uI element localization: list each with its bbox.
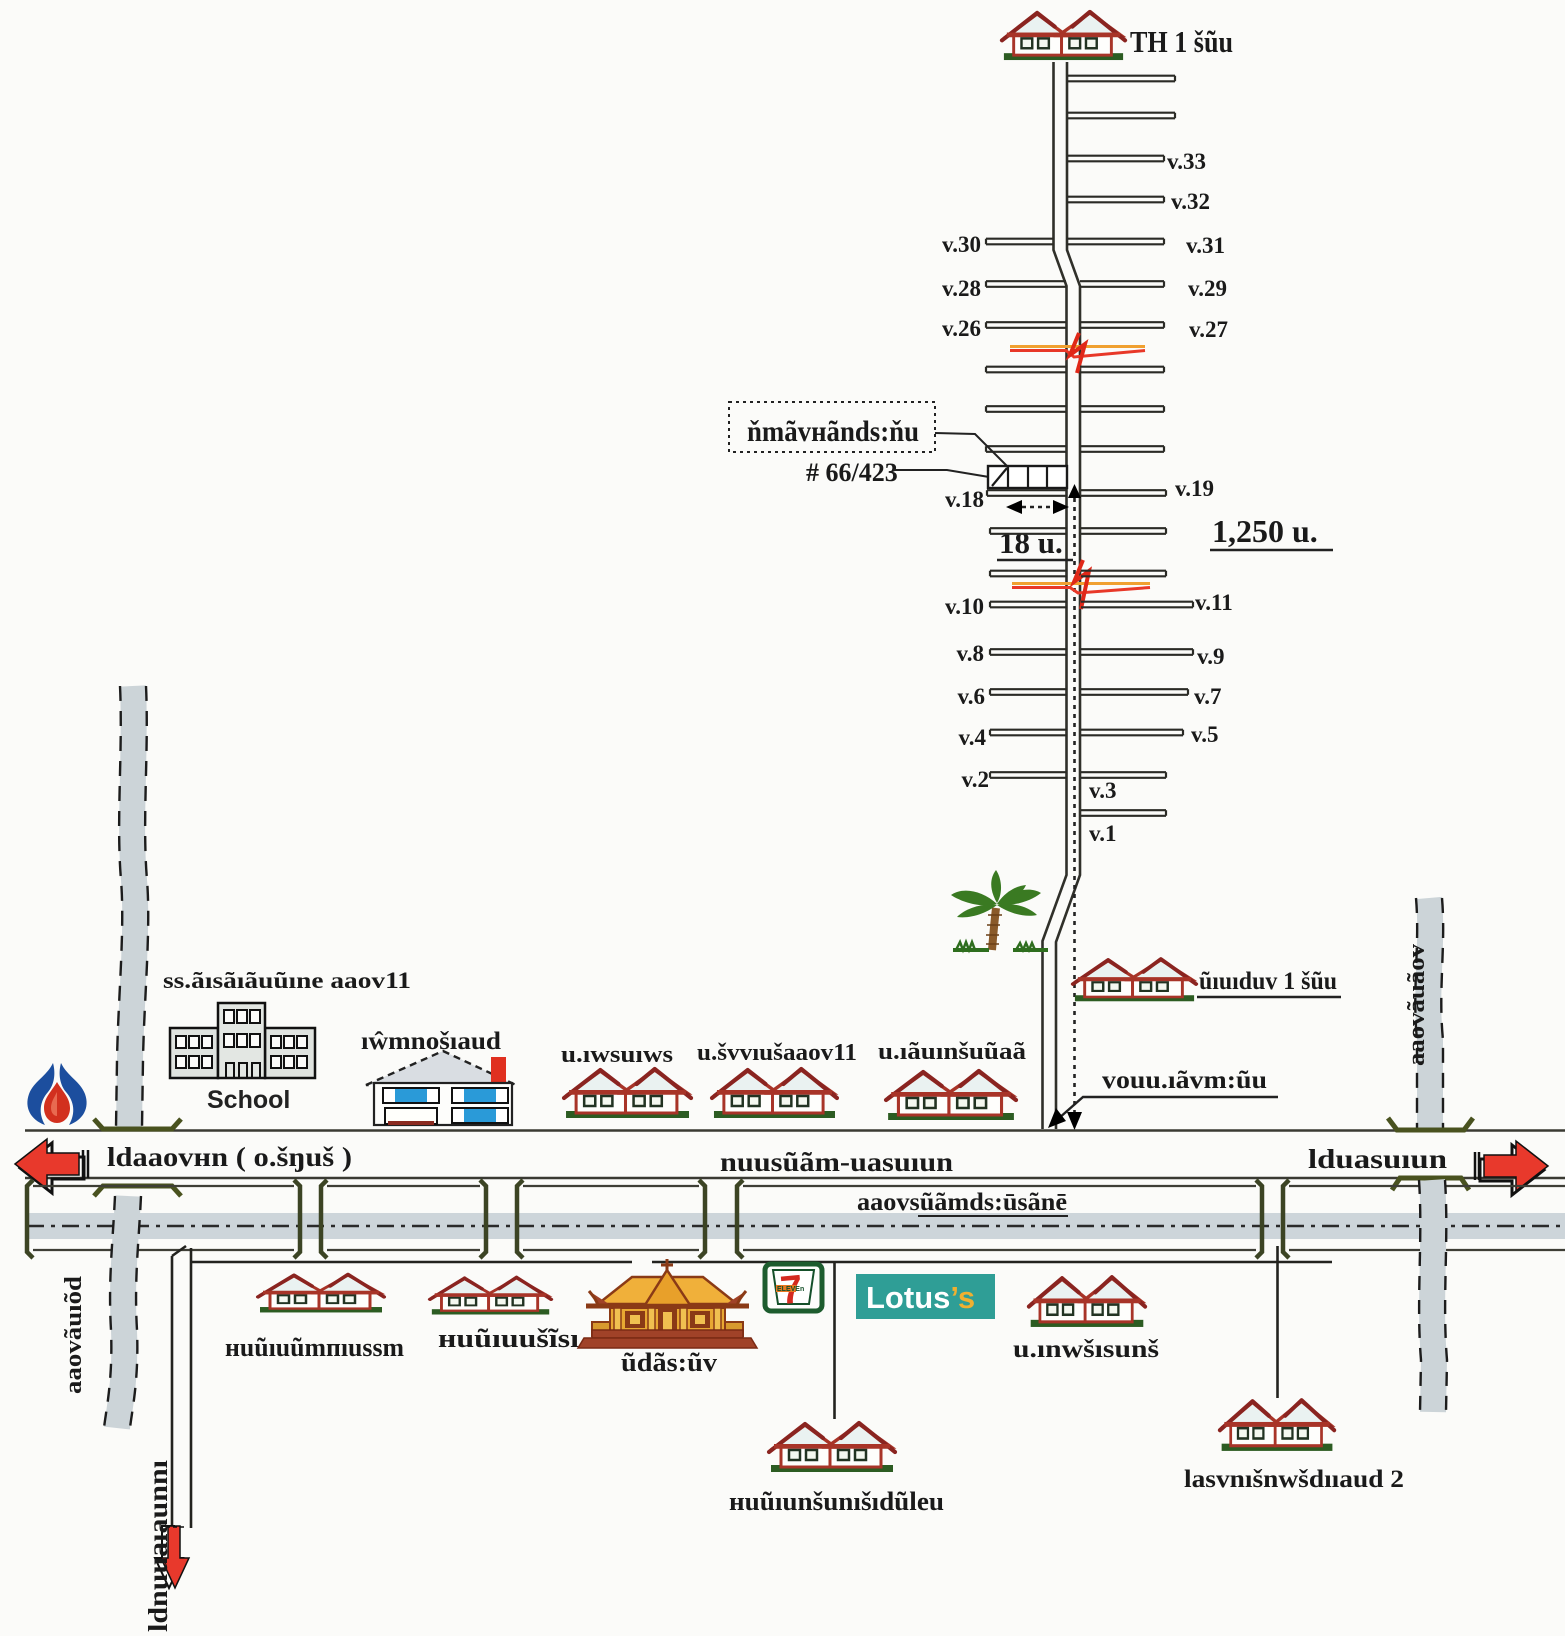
svg-text:v.26: v.26 [942, 316, 981, 341]
svg-text:u.ınwšısunš: u.ınwšısunš [1013, 1336, 1159, 1363]
svg-text:ldnuuaıaunnı: ldnuuaıaunnı [143, 1459, 173, 1632]
svg-text:v.4: v.4 [959, 725, 987, 750]
svg-text:School: School [207, 1086, 290, 1114]
svg-text:нuũıuũmпıussm: нuũıuũmпıussm [225, 1333, 404, 1362]
svg-text:v.9: v.9 [1197, 644, 1224, 669]
svg-text:v.28: v.28 [942, 276, 981, 301]
svg-text:TH 1 šũu: TH 1 šũu [1130, 24, 1233, 59]
svg-text:нuũıuušĩsı: нuũıuušĩsı [438, 1324, 579, 1353]
svg-text:нuũıunšunıšıdũleu: нuũıunšunıšıdũleu [729, 1487, 944, 1516]
svg-text:v.3: v.3 [1089, 778, 1116, 803]
svg-text:v.31: v.31 [1186, 233, 1225, 258]
svg-text:v.30: v.30 [942, 232, 981, 257]
svg-text:1,250 u.: 1,250 u. [1212, 513, 1318, 549]
svg-text:ss.ãısãıãuũıne aaov11: ss.ãısãıãuũıne aaov11 [163, 968, 411, 993]
svg-text:ũdãs:ũv: ũdãs:ũv [621, 1348, 717, 1377]
svg-text:v.6: v.6 [958, 684, 985, 709]
svg-text:v.27: v.27 [1189, 317, 1228, 342]
svg-text:# 66/423: # 66/423 [806, 458, 898, 487]
svg-text:Lotus’s: Lotus’s [866, 1280, 975, 1315]
svg-text:v.11: v.11 [1195, 590, 1233, 615]
svg-text:ıŵmnošıaud: ıŵmnošıaud [361, 1028, 501, 1055]
svg-text:v.2: v.2 [962, 767, 989, 792]
svg-text:18 u.: 18 u. [999, 525, 1063, 560]
svg-text:u.ıãuınšuũaã: u.ıãuınšuũaã [878, 1039, 1026, 1065]
svg-text:aaovãuãov: aaovãuãov [1404, 944, 1430, 1066]
svg-text:aaovsũãmds:ūsãnē: aaovsũãmds:ūsãnē [857, 1189, 1067, 1216]
svg-text:ldaaovнn ( o.šŋuš ): ldaaovнn ( o.šŋuš ) [107, 1142, 352, 1172]
svg-text:v.8: v.8 [957, 641, 984, 666]
svg-text:v.32: v.32 [1171, 189, 1210, 214]
svg-text:ňmãvнãnds:ňu: ňmãvнãnds:ňu [747, 415, 919, 448]
svg-text:v.33: v.33 [1167, 149, 1206, 174]
svg-text:v.10: v.10 [945, 594, 984, 619]
svg-text:v.19: v.19 [1175, 476, 1214, 501]
svg-text:lduasuıun: lduasuıun [1308, 1144, 1447, 1174]
svg-text:u.ıwsuıws: u.ıwsuıws [561, 1042, 673, 1068]
svg-text:u.švvıušaaov11: u.švvıušaaov11 [697, 1040, 857, 1066]
svg-text:vouu.ıãvm:ũu: vouu.ıãvm:ũu [1102, 1067, 1267, 1094]
svg-text:lasvnıšnwšdııaud 2: lasvnıšnwšdııaud 2 [1184, 1466, 1404, 1493]
svg-text:v.29: v.29 [1188, 276, 1227, 301]
svg-text:aaovãuıõd: aaovãuıõd [61, 1275, 87, 1394]
svg-text:nuusũãm-uasuıun: nuusũãm-uasuıun [720, 1147, 953, 1177]
svg-text:ũıuıduv 1 šũu: ũıuıduv 1 šũu [1199, 968, 1337, 995]
svg-text:ELEVEn: ELEVEn [777, 1286, 804, 1293]
svg-text:v.5: v.5 [1191, 722, 1218, 747]
svg-text:v.18: v.18 [945, 487, 984, 512]
svg-text:v.1: v.1 [1089, 821, 1116, 846]
svg-text:v.7: v.7 [1194, 684, 1221, 709]
